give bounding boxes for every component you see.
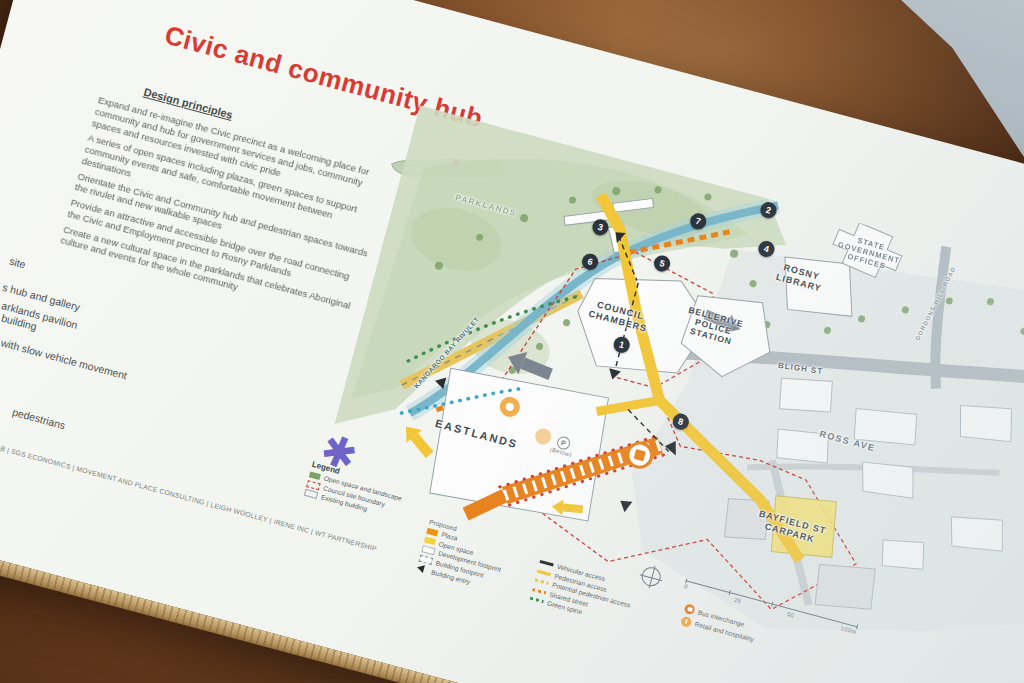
- eastlands-building: [418, 357, 620, 535]
- vehicular-access-swatch: [539, 560, 553, 567]
- photo-of-plan-on-table: { "page": { "title": "Civic and communit…: [0, 0, 1024, 683]
- design-principles-text: Expand and re-imagine the Civic precinct…: [58, 94, 391, 328]
- feature-list-item: with slow vehicle movement: [0, 336, 129, 381]
- feature-list-item: site: [8, 255, 27, 271]
- retail-legend-icon: [680, 615, 692, 627]
- plaza-swatch: [426, 527, 438, 536]
- pedestrian-access-swatch: [537, 569, 551, 576]
- open-space-swatch: [309, 471, 321, 480]
- shared-street-swatch: [532, 587, 546, 594]
- green-spine-swatch: [530, 597, 544, 604]
- open-space-proposed-swatch: [424, 536, 436, 545]
- development-footprint-swatch: [421, 545, 435, 555]
- building-footprint-swatch: [419, 554, 433, 564]
- site-map: PARKLANDS KANGAROO BAY RIVULET COUNCIL C…: [298, 105, 1024, 683]
- existing-building-swatch: [304, 489, 318, 499]
- building-entry-swatch: [416, 563, 425, 573]
- site-map-graphics: [298, 105, 1024, 683]
- boundary-swatch: [306, 480, 320, 490]
- document-board: Civic and community hub Design principle…: [0, 0, 1024, 683]
- bus-interchange-legend-icon: [683, 603, 695, 615]
- feature-list-item: pedestrians: [11, 406, 67, 432]
- potential-pedestrian-swatch: [535, 578, 549, 585]
